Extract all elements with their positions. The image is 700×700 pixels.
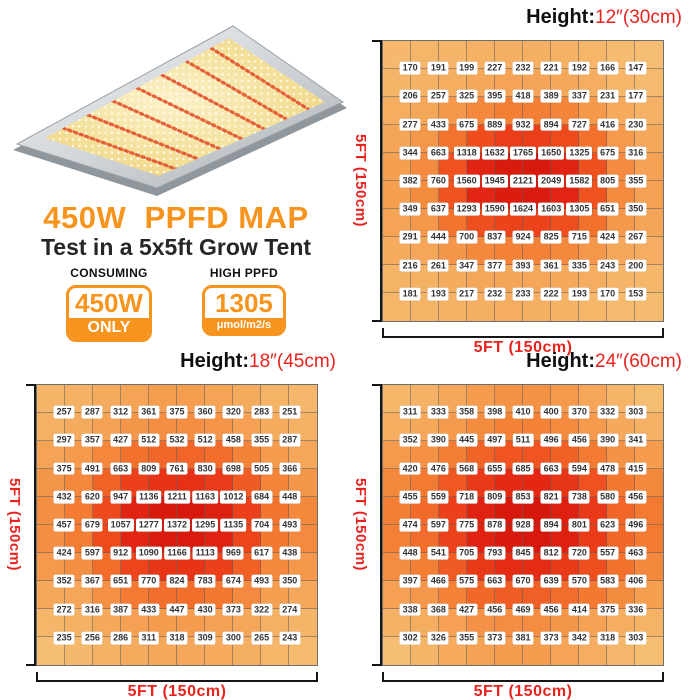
ppfd-value: 257 [54,406,75,419]
ppfd-value: 1624 [510,203,536,216]
ppfd-value: 200 [625,259,646,272]
ppfd-value: 448 [279,490,300,503]
ppfd-value: 375 [166,406,187,419]
ppfd-value: 444 [428,231,449,244]
badge-unit: μmol/m2/s [205,318,283,333]
product-title: 450W PPFD MAP [0,200,352,236]
badge-box: 1305 μmol/m2/s [202,285,286,336]
ppfd-value: 177 [625,90,646,103]
product-subtitle: Test in a 5x5ft Grow Tent [0,234,352,261]
ppfd-value: 206 [400,90,421,103]
ppfd-value: 427 [456,603,477,616]
ppfd-value: 318 [166,631,187,644]
ppfd-value: 663 [110,462,131,475]
ppfd-value: 704 [251,519,272,532]
ppfd-value: 651 [110,575,131,588]
ppfd-value: 366 [279,462,300,475]
ppfd-value: 474 [400,519,421,532]
ppfd-value: 1325 [566,146,592,159]
ppfd-value: 670 [512,575,533,588]
ppfd-value: 230 [625,118,646,131]
ppfd-value: 1135 [221,519,247,532]
ppfd-value: 300 [223,631,244,644]
ppfd-value: 416 [597,118,618,131]
ppfd-value: 685 [512,462,533,475]
ppfd-value: 335 [569,259,590,272]
ppfd-value: 355 [251,434,272,447]
ppfd-value: 684 [251,490,272,503]
ppfd-value: 375 [597,603,618,616]
ppfd-value: 620 [82,490,103,503]
ppfd-value: 496 [541,434,562,447]
ppfd-value: 191 [428,62,449,75]
ppfd-value: 928 [512,519,533,532]
ppfd-value: 1090 [136,547,162,560]
ppfd-value: 1582 [566,175,592,188]
ppfd-value: 809 [138,462,159,475]
ppfd-value: 389 [541,90,562,103]
ppfd-value: 715 [569,231,590,244]
ppfd-value: 511 [513,434,534,447]
ppfd-value: 170 [597,287,618,300]
ppfd-value: 235 [54,631,75,644]
ppfd-value: 311 [400,406,421,419]
ppfd-value: 532 [166,434,187,447]
ppfd-value: 216 [400,259,421,272]
ppfd-value: 373 [541,631,562,644]
ppfd-value: 243 [279,631,300,644]
ppfd-value: 355 [456,631,477,644]
ppfd-value: 406 [625,575,646,588]
grow-light-image [5,0,350,200]
ppfd-value: 433 [428,118,449,131]
ppfd-value: 368 [428,603,449,616]
ppfd-value: 297 [54,434,75,447]
ppfd-value: 663 [428,146,449,159]
ppfd-value: 316 [625,146,646,159]
ppfd-value: 382 [400,175,421,188]
ppfd-value: 349 [400,203,421,216]
ppfd-value: 559 [428,490,449,503]
ppfd-value: 675 [597,146,618,159]
y-axis-label: 5FT (150cm) [352,134,369,227]
ppfd-value: 894 [541,118,562,131]
ppfd-value: 623 [597,519,618,532]
ppfd-panel-24in: Height:24″(60cm) 5FT (150cm) 31133335839… [352,350,684,700]
ppfd-value: 291 [400,231,421,244]
ppfd-value: 181 [400,287,421,300]
ppfd-value: 338 [400,603,421,616]
ppfd-value: 287 [82,406,103,419]
ppfd-value: 261 [428,259,449,272]
ppfd-value: 438 [279,547,300,560]
ppfd-value: 217 [456,287,477,300]
ppfd-value: 597 [428,519,449,532]
ppfd-value: 303 [625,631,646,644]
ppfd-value: 505 [251,462,272,475]
ppfd-value: 1293 [454,203,480,216]
ppfd-value: 377 [484,259,505,272]
ppfd-value: 256 [82,631,103,644]
ppfd-value: 302 [400,631,421,644]
ppfd-value: 393 [512,259,533,272]
ppfd-value: 375 [54,462,75,475]
ppfd-value: 267 [625,231,646,244]
ppfd-value: 2049 [538,175,564,188]
ppfd-value: 341 [625,434,646,447]
ppfd-value: 583 [597,575,618,588]
ppfd-value: 457 [54,519,75,532]
ppfd-value: 166 [597,62,618,75]
high-ppfd-badge: HIGH PPFD 1305 μmol/m2/s [202,266,286,342]
ppfd-value: 326 [428,631,449,644]
ppfd-value: 705 [456,547,477,560]
ppfd-value: 775 [456,519,477,532]
ppfd-value: 1632 [482,146,508,159]
consuming-badge: CONSUMING 450W ONLY [66,266,152,342]
ppfd-value: 309 [195,631,216,644]
ppfd-value: 361 [138,406,159,419]
ppfd-value: 456 [541,603,562,616]
ppfd-value: 568 [456,462,477,475]
ppfd-value: 192 [569,62,590,75]
ppfd-value: 414 [569,603,590,616]
ppfd-value: 336 [625,603,646,616]
heatmap-labels: 1701911992272322211921661472062573253954… [382,40,664,322]
ppfd-value: 738 [569,490,590,503]
ppfd-value: 947 [110,490,131,503]
ppfd-value: 2121 [510,175,536,188]
ppfd-value: 147 [625,62,646,75]
ppfd-value: 424 [54,547,75,560]
ppfd-value: 381 [512,631,533,644]
ppfd-value: 1277 [136,519,162,532]
y-axis-label: 5FT (150cm) [6,478,23,571]
ppfd-value: 277 [400,118,421,131]
x-dimension-bracket [382,328,664,338]
ppfd-value: 469 [512,603,533,616]
ppfd-value: 361 [541,259,562,272]
ppfd-value: 432 [54,490,75,503]
ppfd-value: 395 [484,90,505,103]
height-value: 12″(30cm) [595,7,682,28]
ppfd-value: 493 [279,519,300,532]
ppfd-value: 398 [484,406,505,419]
ppfd-value: 370 [569,406,590,419]
ppfd-value: 448 [400,547,421,560]
ppfd-value: 783 [195,575,216,588]
ppfd-value: 424 [597,231,618,244]
ppfd-value: 397 [400,575,421,588]
panel-header: Height:12″(30cm) [352,6,684,34]
ppfd-value: 232 [484,287,505,300]
heatmap-labels: 2572873123613753603202832512973574275125… [36,384,318,666]
ppfd-value: 337 [569,90,590,103]
ppfd-value: 1057 [108,519,134,532]
ppfd-value: 400 [541,406,562,419]
ppfd-value: 1166 [164,547,190,560]
ppfd-value: 675 [456,118,477,131]
ppfd-value: 445 [456,434,477,447]
height-label: Height: [180,350,249,372]
ppfd-value: 342 [569,631,590,644]
ppfd-value: 283 [251,406,272,419]
ppfd-value: 809 [484,490,505,503]
ppfd-value: 512 [138,434,159,447]
ppfd-value: 350 [625,203,646,216]
height-label: Height: [526,350,595,372]
ppfd-value: 272 [54,603,75,616]
ppfd-value: 232 [512,62,533,75]
ppfd-value: 512 [195,434,216,447]
ppfd-value: 496 [625,519,646,532]
ppfd-value: 878 [484,519,505,532]
ppfd-value: 674 [223,575,244,588]
ppfd-panel-12in: Height:12″(30cm) 5FT (150cm) 17019119922… [352,6,684,357]
ppfd-value: 251 [279,406,300,419]
ppfd-value: 257 [428,90,449,103]
ppfd-value: 497 [484,434,505,447]
panel-header: Height:18″(45cm) [6,350,338,378]
ppfd-value: 580 [597,490,618,503]
ppfd-value: 793 [484,547,505,560]
ppfd-value: 830 [195,462,216,475]
ppfd-value: 493 [251,575,272,588]
ppfd-value: 352 [400,434,421,447]
ppfd-value: 594 [569,462,590,475]
ppfd-value: 761 [166,462,187,475]
ppfd-value: 303 [625,406,646,419]
ppfd-value: 458 [223,434,244,447]
ppfd-value: 853 [512,490,533,503]
y-dimension-bracket [372,384,382,666]
ppfd-value: 1372 [164,519,190,532]
height-label: Height: [526,6,595,28]
ppfd-value: 433 [138,603,159,616]
ppfd-value: 760 [428,175,449,188]
ppfd-value: 557 [597,547,618,560]
ppfd-value: 320 [223,406,244,419]
ppfd-value: 812 [541,547,562,560]
ppfd-value: 679 [82,519,103,532]
ppfd-value: 332 [597,406,618,419]
ppfd-value: 287 [279,434,300,447]
ppfd-value: 655 [484,462,505,475]
ppfd-value: 199 [456,62,477,75]
badge-row: CONSUMING 450W ONLY HIGH PPFD 1305 μmol/… [0,266,352,342]
ppfd-value: 1113 [193,547,218,560]
ppfd-value: 1650 [538,146,564,159]
ppfd-value: 1318 [454,146,480,159]
badge-label: HIGH PPFD [210,266,278,280]
badge-unit: ONLY [69,318,149,339]
ppfd-value: 373 [223,603,244,616]
ppfd-value: 1295 [192,519,218,532]
ppfd-value: 805 [597,175,618,188]
ppfd-value: 663 [484,575,505,588]
ppfd-value: 455 [400,490,421,503]
ppfd-value: 265 [251,631,272,644]
ppfd-value: 698 [223,462,244,475]
ppfd-value: 355 [625,175,646,188]
ppfd-value: 478 [597,462,618,475]
ppfd-value: 821 [541,490,562,503]
ppfd-value: 637 [428,203,449,216]
ppfd-value: 845 [512,547,533,560]
x-axis-label: 5FT (150cm) [36,683,318,700]
ppfd-value: 1560 [454,175,480,188]
y-dimension-bracket [372,40,382,322]
ppfd-value: 801 [569,519,590,532]
ppfd-value: 420 [400,462,421,475]
ppfd-value: 243 [597,259,618,272]
badge-box: 450W ONLY [66,285,152,342]
ppfd-value: 597 [82,547,103,560]
ppfd-value: 221 [541,62,562,75]
ppfd-value: 311 [139,631,160,644]
y-axis-label: 5FT (150cm) [352,478,369,571]
ppfd-value: 466 [428,575,449,588]
ppfd-value: 274 [279,603,300,616]
ppfd-value: 617 [251,547,272,560]
badge-value: 1305 [205,288,283,318]
ppfd-value: 415 [625,462,646,475]
ppfd-value: 889 [484,118,505,131]
y-dimension-bracket [26,384,36,666]
ppfd-value: 233 [512,287,533,300]
ppfd-value: 639 [541,575,562,588]
ppfd-value: 373 [484,631,505,644]
badge-value: 450W [69,288,149,318]
ppfd-value: 1136 [136,490,162,503]
ppfd-value: 837 [484,231,505,244]
ppfd-value: 316 [82,603,103,616]
ppfd-value: 894 [541,519,562,532]
ppfd-value: 418 [512,90,533,103]
badge-label: CONSUMING [70,266,147,280]
ppfd-value: 390 [428,434,449,447]
ppfd-value: 824 [166,575,187,588]
height-value: 18″(45cm) [249,351,336,372]
ppfd-value: 358 [456,406,477,419]
ppfd-value: 333 [428,406,449,419]
ppfd-value: 570 [569,575,590,588]
ppfd-value: 357 [82,434,103,447]
ppfd-value: 1305 [566,203,592,216]
ppfd-value: 1163 [192,490,218,503]
ppfd-value: 312 [110,406,131,419]
ppfd-value: 367 [82,575,103,588]
ppfd-value: 1012 [220,490,246,503]
ppfd-value: 447 [166,603,187,616]
ppfd-value: 770 [138,575,159,588]
x-axis-label: 5FT (150cm) [382,683,664,700]
ppfd-value: 932 [512,118,533,131]
ppfd-value: 430 [195,603,216,616]
ppfd-panel-18in: Height:18″(45cm) 5FT (150cm) 25728731236… [6,350,338,700]
ppfd-value: 718 [456,490,477,503]
x-dimension-bracket [382,672,664,682]
height-value: 24″(60cm) [595,351,682,372]
ppfd-value: 286 [110,631,131,644]
ppfd-value: 720 [569,547,590,560]
ppfd-value: 969 [223,547,244,560]
ppfd-value: 700 [456,231,477,244]
ppfd-value: 325 [456,90,477,103]
ppfd-value: 727 [569,118,590,131]
ppfd-value: 663 [541,462,562,475]
ppfd-value: 456 [569,434,590,447]
ppfd-value: 456 [625,490,646,503]
ppfd-value: 360 [195,406,216,419]
ppfd-value: 1211 [164,490,190,503]
ppfd-value: 227 [484,62,505,75]
ppfd-value: 1590 [482,203,508,216]
ppfd-value: 352 [54,575,75,588]
ppfd-value: 476 [428,462,449,475]
heatmap-labels: 3113333583984104003703323033523904454975… [382,384,664,666]
ppfd-value: 456 [484,603,505,616]
ppfd-value: 347 [456,259,477,272]
ppfd-value: 1945 [482,175,508,188]
ppfd-value: 912 [110,547,131,560]
ppfd-value: 651 [597,203,618,216]
ppfd-value: 344 [400,146,421,159]
ppfd-value: 825 [541,231,562,244]
ppfd-value: 390 [597,434,618,447]
ppfd-value: 350 [279,575,300,588]
page: 450W PPFD MAP Test in a 5x5ft Grow Tent … [0,0,700,700]
ppfd-value: 410 [512,406,533,419]
ppfd-value: 924 [512,231,533,244]
ppfd-value: 193 [569,287,590,300]
ppfd-value: 427 [110,434,131,447]
ppfd-value: 318 [597,631,618,644]
ppfd-value: 575 [456,575,477,588]
ppfd-value: 1765 [510,146,536,159]
ppfd-value: 491 [82,462,103,475]
ppfd-value: 541 [428,547,449,560]
panel-header: Height:24″(60cm) [352,350,684,378]
ppfd-value: 193 [428,287,449,300]
x-dimension-bracket [36,672,318,682]
ppfd-value: 463 [625,547,646,560]
ppfd-value: 322 [251,603,272,616]
ppfd-value: 231 [597,90,618,103]
ppfd-value: 153 [625,287,646,300]
ppfd-value: 222 [541,287,562,300]
ppfd-value: 170 [400,62,421,75]
ppfd-value: 387 [110,603,131,616]
ppfd-value: 1603 [538,203,564,216]
